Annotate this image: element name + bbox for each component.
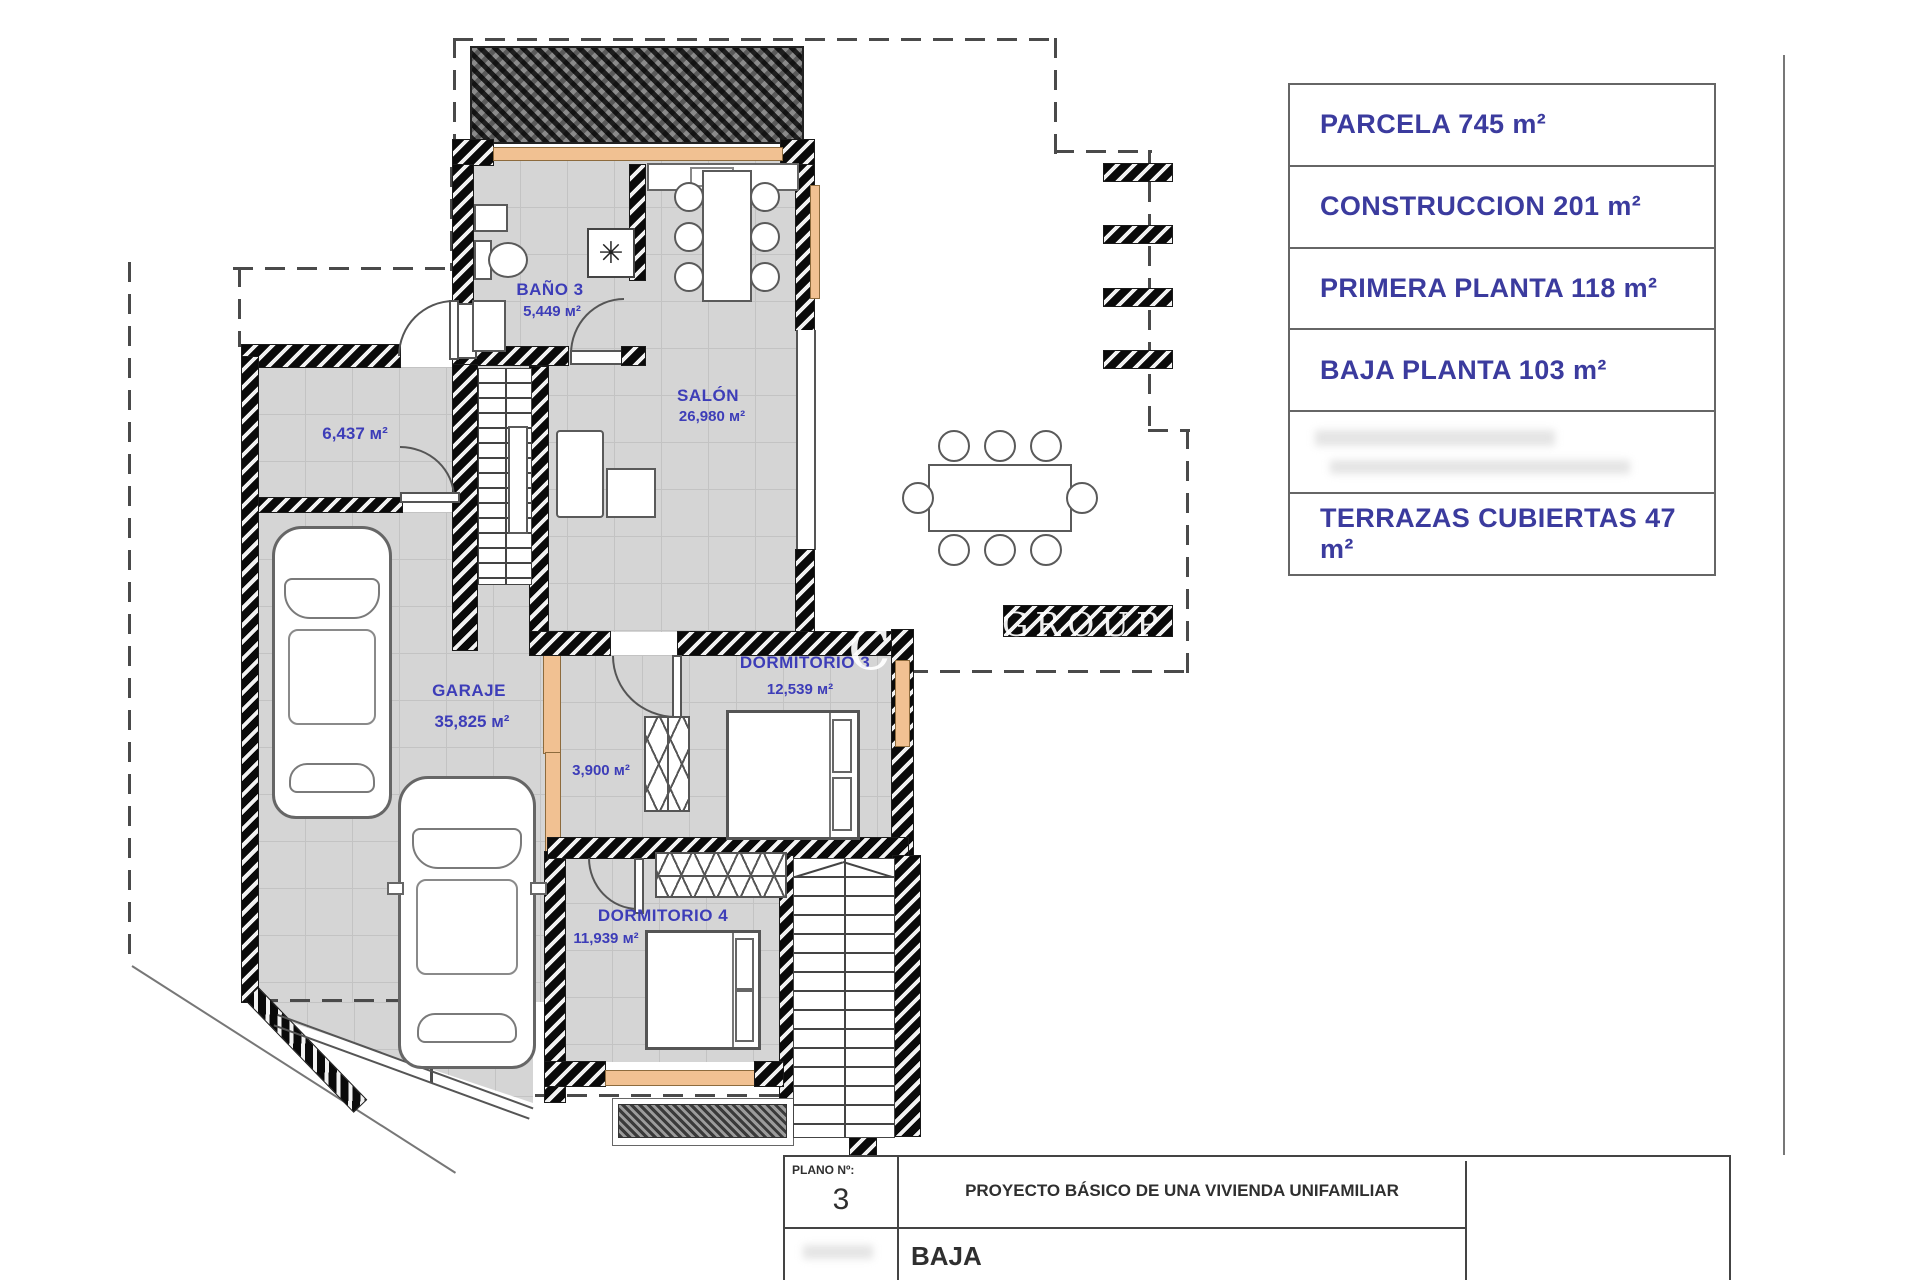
legend-text: PARCELA 745 m² (1320, 109, 1546, 140)
wall-storage-bottom (257, 498, 402, 512)
porch-dash-top (233, 267, 457, 270)
watermark-group: GROUP (1002, 605, 1165, 644)
terrace-chair (984, 534, 1016, 566)
chair (674, 182, 704, 212)
label-hall-area: 3,900 м² (572, 762, 630, 779)
car-windshield (412, 828, 523, 869)
wall-dorm4-bottom-right (755, 1062, 783, 1086)
parcel-dash-terrace-right (1054, 38, 1057, 154)
label-bano3-area: 5,449 м² (523, 303, 581, 320)
parcel-dash-step (1054, 150, 1152, 153)
wall-stairhall-left (453, 365, 477, 650)
terrace-chair (938, 534, 970, 566)
wall-top-left-corner (453, 140, 493, 165)
title-block: PLANO Nº: 3 PROYECTO BÁSICO DE UNA VIVIE… (783, 1155, 1731, 1280)
erased-text-smudge (1315, 430, 1555, 446)
label-bano3: BAÑO 3 (516, 280, 583, 300)
parcel-dash-terrace-left (453, 38, 456, 142)
wall-top-right-corner (781, 140, 814, 165)
watermark-letters: C O (848, 618, 991, 683)
porch-dash-left (238, 267, 241, 347)
car-roof (288, 629, 377, 725)
tv-cabinet (508, 426, 528, 534)
floor-plan-sheet: ✳ (0, 0, 1920, 1280)
legend-text: PRIMERA PLANTA 118 m² (1320, 273, 1657, 304)
door-leaf-entry (449, 300, 459, 360)
stairs-main (793, 858, 895, 1138)
wall-stairs-right (893, 856, 920, 1136)
bed-dormitorio4 (645, 930, 761, 1050)
covered-terrace-top (470, 46, 804, 144)
legend-text: BAJA PLANTA 103 m² (1320, 355, 1607, 386)
washbasin (474, 204, 508, 232)
titleblock-divider-v1 (897, 1157, 899, 1280)
legend-row-blank (1290, 412, 1714, 494)
dining-table-outdoor (928, 464, 1072, 532)
car-1 (272, 526, 392, 819)
label-dorm4-area: 11,939 м² (573, 930, 638, 947)
terrace-chair (1066, 482, 1098, 514)
wardrobe-hall (644, 716, 690, 812)
salon-glass-door (796, 330, 816, 550)
sheet-frame-right (1783, 55, 1785, 1155)
legend-table: PARCELA 745 m² CONSTRUCCION 201 m² PRIME… (1288, 83, 1716, 576)
project-title: PROYECTO BÁSICO DE UNA VIVIENDA UNIFAMIL… (899, 1181, 1465, 1201)
stairs-internal-stringer (505, 369, 507, 584)
label-garaje: GARAJE (432, 681, 506, 701)
wall-left-main (242, 357, 258, 1002)
door-leaf-storage (400, 492, 460, 503)
window-kitchen-top (493, 147, 783, 161)
wall-garage-salon-divider (530, 367, 548, 632)
parcel-dash-right (1186, 429, 1189, 675)
legend-row-primera-planta: PRIMERA PLANTA 118 m² (1290, 249, 1714, 331)
bed-headboard-line (829, 713, 831, 837)
car-mirror-left (387, 882, 404, 895)
pillow (735, 990, 754, 1042)
stairs-main-stringer (844, 859, 846, 1137)
plano-label: PLANO Nº: (792, 1163, 854, 1177)
dorm4-dash-terrace (535, 1094, 793, 1097)
parcel-dash-top (453, 38, 1057, 41)
door-arc-entry (398, 300, 454, 356)
fence-post-3 (1104, 289, 1172, 306)
legend-text: TERRAZAS CUBIERTAS 47 m² (1320, 503, 1714, 565)
fence-post-1 (1104, 164, 1172, 181)
wall-stairs-left (780, 856, 793, 1136)
chair (750, 222, 780, 252)
wall-salon-dorm3-left (530, 632, 610, 655)
terrace-chair (1030, 430, 1062, 462)
toilet-bowl (488, 242, 528, 278)
legend-row-parcela: PARCELA 745 m² (1290, 85, 1714, 167)
parcel-dash-jog (1148, 429, 1190, 432)
legend-row-baja-planta: BAJA PLANTA 103 m² (1290, 330, 1714, 412)
car-rear-window (289, 763, 376, 793)
wall-titleblock-stub (850, 1138, 876, 1156)
chair (674, 222, 704, 252)
titleblock-smudge (803, 1245, 873, 1259)
plano-number: 3 (785, 1183, 897, 1217)
label-garaje-area: 35,825 м² (435, 712, 510, 732)
label-dorm4: DORMITORIO 4 (598, 906, 728, 926)
titleblock-divider-h (785, 1227, 1467, 1229)
extractor-fan-box: ✳ (587, 228, 635, 278)
legend-text: CONSTRUCCION 201 m² (1320, 191, 1641, 222)
door-leaf-dorm3 (672, 655, 682, 721)
car-mirror-right (530, 882, 547, 895)
car-2 (398, 776, 536, 1069)
wardrobe-dorm4 (655, 852, 787, 898)
terrace-chair (938, 430, 970, 462)
sofa (556, 430, 604, 518)
label-salon-area: 26,980 м² (679, 408, 745, 425)
label-storage-area: 6,437 м² (322, 424, 388, 444)
erased-text-smudge (1330, 460, 1630, 474)
fan-icon: ✳ (598, 236, 623, 271)
fence-post-2 (1104, 226, 1172, 243)
parcel-dash-left (128, 262, 131, 965)
wardrobe-rail (657, 875, 785, 877)
bed-dormitorio3 (726, 710, 860, 840)
terrace-chair (984, 430, 1016, 462)
wardrobe-rail (667, 718, 669, 810)
wall-dorm4-bottom-left (545, 1062, 605, 1086)
wall-bano-bottom-right (622, 347, 645, 365)
label-dorm3-area: 12,539 м² (767, 681, 833, 698)
legend-row-terrazas: TERRAZAS CUBIERTAS 47 m² (1290, 494, 1714, 574)
car-windshield (284, 578, 380, 619)
legend-row-construccion: CONSTRUCCION 201 m² (1290, 167, 1714, 249)
gravel-strip (618, 1104, 787, 1138)
fence-post-4 (1104, 351, 1172, 368)
terrace-chair (902, 482, 934, 514)
floor-label: BAJA (911, 1241, 982, 1272)
label-salon: SALÓN (677, 386, 739, 406)
dining-table-indoor (702, 170, 752, 302)
chair (750, 262, 780, 292)
chair (674, 262, 704, 292)
door-leaf-bano3 (570, 350, 626, 365)
pillow (832, 719, 852, 773)
pillow (735, 938, 754, 990)
shower-tray (472, 300, 506, 352)
terrace-chair (1030, 534, 1062, 566)
chair (750, 182, 780, 212)
window-dorm4-bottom (605, 1070, 757, 1086)
window-salon-right (810, 185, 820, 299)
wall-right-lower (796, 550, 814, 645)
coffee-table (606, 468, 656, 518)
bed-headboard-line (732, 933, 734, 1047)
pillow (832, 777, 852, 831)
wall-entry-top (242, 345, 400, 367)
car-roof (416, 879, 519, 975)
titleblock-divider-v2 (1465, 1161, 1467, 1280)
car-rear-window (417, 1013, 517, 1043)
